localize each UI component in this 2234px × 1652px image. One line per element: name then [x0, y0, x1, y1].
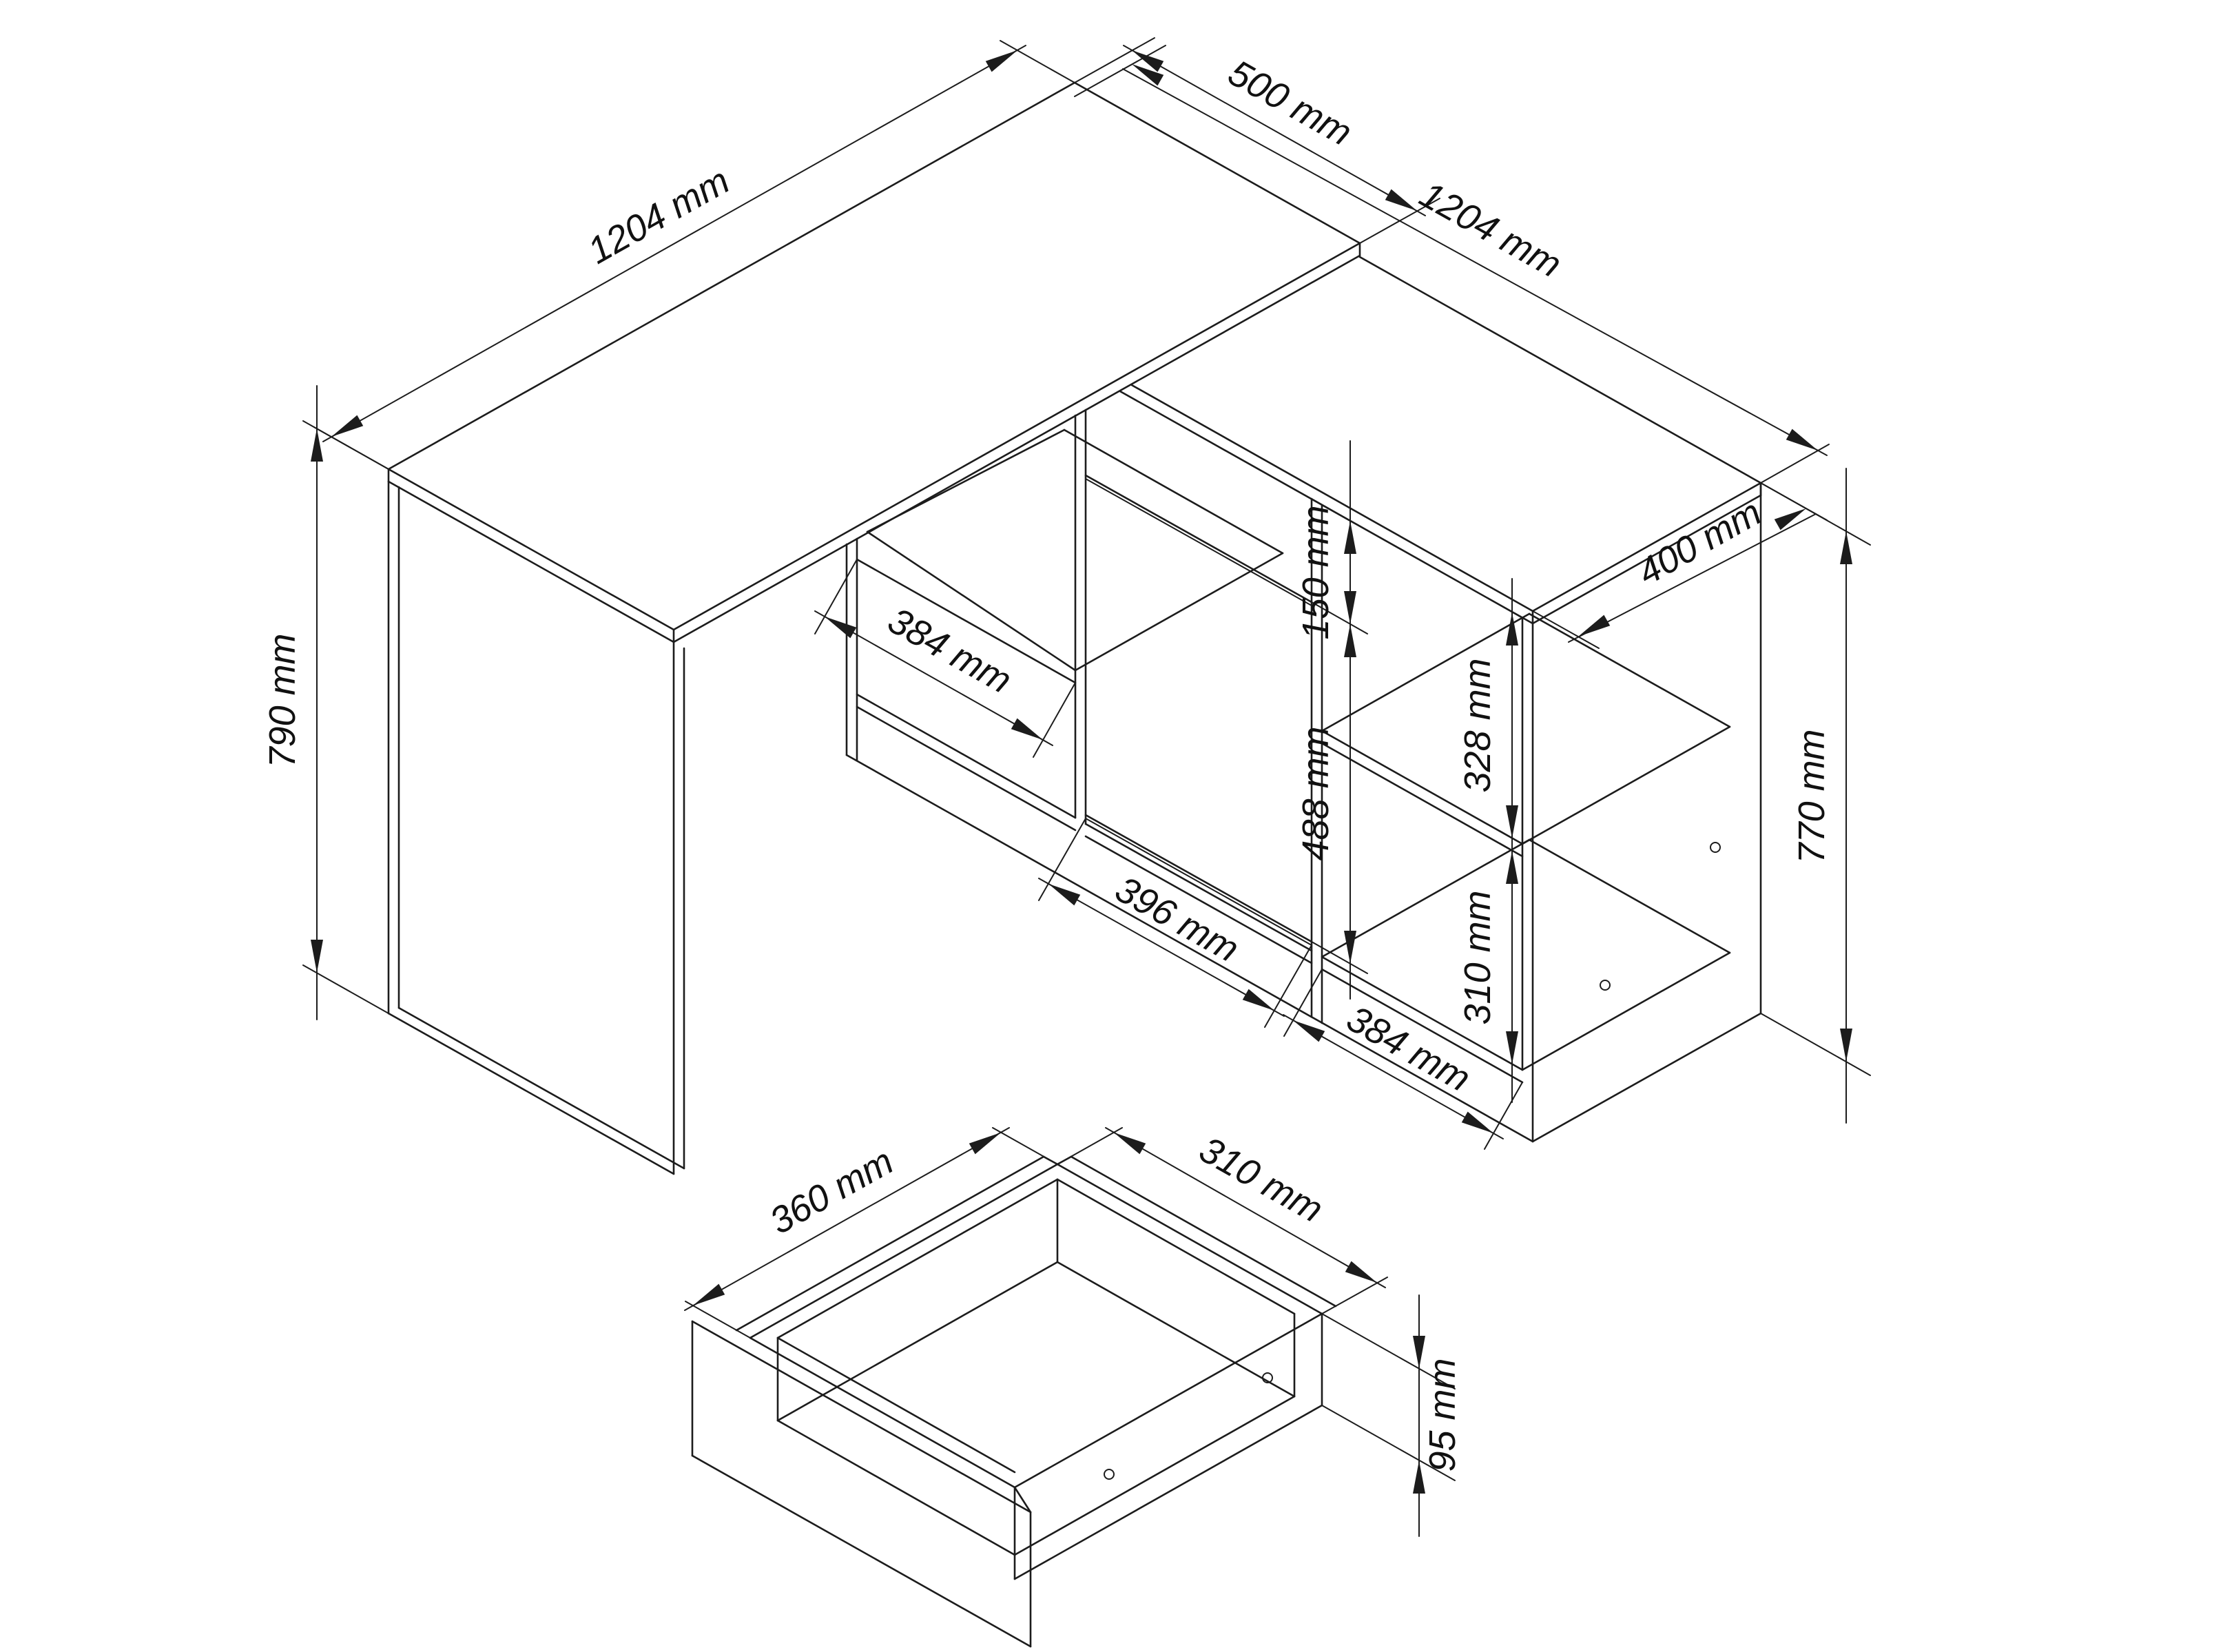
drawing-page: 1204 mm 500 mm 790 mm 1204 mm 400 mm 770…: [0, 0, 2234, 1652]
dim-cabinet-depth: 400 mm: [1631, 491, 1768, 593]
desk-outline: [389, 83, 1360, 1174]
dim-upper-compartment-height: 328 mm: [1457, 658, 1498, 792]
dim-drawer-width: 310 mm: [1192, 1128, 1330, 1230]
furniture-technical-drawing: 1204 mm 500 mm 790 mm 1204 mm 400 mm 770…: [0, 0, 2234, 1652]
dim-lower-compartment-height: 310 mm: [1457, 890, 1498, 1024]
dimension-labels: 1204 mm 500 mm 790 mm 1204 mm 400 mm 770…: [262, 52, 1832, 1472]
dim-drawer-front-height: 150 mm: [1295, 505, 1336, 639]
dim-cabinet-height: 770 mm: [1791, 729, 1832, 863]
dim-desk-height: 790 mm: [262, 633, 303, 767]
dim-desk-depth: 500 mm: [1221, 52, 1358, 154]
dimension-lines: [303, 38, 1870, 1536]
screw-hole: [1710, 843, 1720, 852]
screw-hole: [1600, 980, 1610, 990]
dim-desk-length: 1204 mm: [581, 160, 736, 272]
sideboard-outline: [847, 257, 1761, 1142]
dim-door-height: 488 mm: [1295, 726, 1336, 860]
dim-cabinet-length: 1204 mm: [1413, 174, 1569, 286]
dim-drawer-side-height: 95 mm: [1422, 1358, 1463, 1472]
dim-door-width: 396 mm: [1108, 868, 1245, 970]
screw-hole: [1104, 1469, 1114, 1479]
dim-desk-shelf-width: 384 mm: [881, 599, 1018, 701]
